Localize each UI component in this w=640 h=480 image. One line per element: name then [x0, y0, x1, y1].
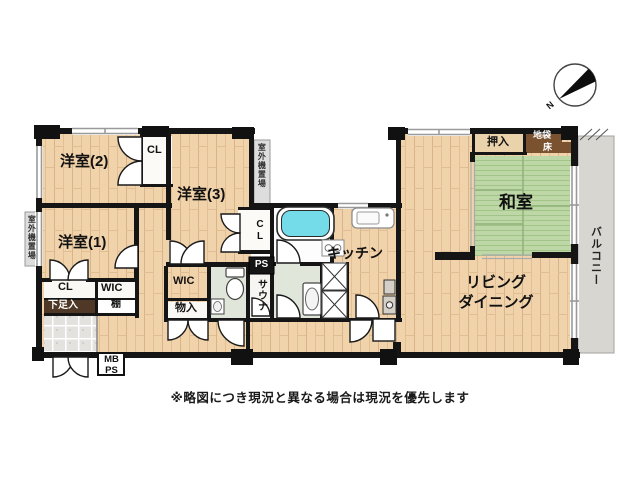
room-label-washitsu: 和室: [499, 194, 533, 212]
room-label-yoshitsu2: 洋室(2): [60, 154, 108, 170]
closet-label-oshiire: 押入: [487, 137, 509, 149]
mb-line2: PS: [105, 365, 118, 376]
floorplan-image: N 洋室(2) 洋室(3) 洋室(1) 和室 リビング ダイニング キッチン C…: [0, 0, 640, 480]
label-outdoor-unit-left: 室外機置場: [27, 215, 35, 260]
small-fixture: [383, 280, 396, 314]
label-ps: PS: [249, 260, 274, 271]
washbasin: [303, 283, 321, 315]
label-tana: 棚: [111, 300, 121, 311]
closet-label-cl-mid: CL: [254, 219, 265, 243]
room-label-yoshitsu3: 洋室(3): [177, 187, 225, 203]
living-line2: ダイニング: [458, 294, 533, 311]
closet-label-monoiri: 物入: [175, 303, 197, 315]
closet-label-cl-entry: CL: [58, 282, 73, 294]
room-label-yoshitsu1: 洋室(1): [58, 235, 106, 251]
label-outdoor-unit-top: 室外機置場: [257, 143, 265, 188]
closet-label-wic-left: WIC: [101, 283, 122, 295]
label-toko: 床: [543, 143, 552, 152]
closet-label-cl-top: CL: [147, 145, 162, 157]
compass-icon: N: [544, 64, 596, 111]
living-line1: リビング: [466, 274, 526, 291]
kitchen-sink: [352, 208, 394, 228]
mb-line1: MB: [104, 354, 119, 365]
room-label-kitchen: キッチン: [327, 246, 383, 261]
label-mb-ps: MB PS: [99, 355, 124, 377]
closet-label-wic-right: WIC: [173, 276, 194, 288]
label-sauna: サウナ: [255, 279, 266, 312]
disclaimer-caption: ※略図につき現況と異なる場合は現況を優先します: [0, 387, 640, 406]
compass-n-label: N: [544, 99, 555, 111]
room-label-living-dining: リビング ダイニング: [430, 273, 562, 314]
hatched-storage: [322, 263, 347, 318]
closet-label-jibukuro: 地袋: [533, 131, 551, 140]
label-balcony: バルコニー: [589, 226, 601, 286]
label-getabako: 下足入: [48, 301, 78, 312]
